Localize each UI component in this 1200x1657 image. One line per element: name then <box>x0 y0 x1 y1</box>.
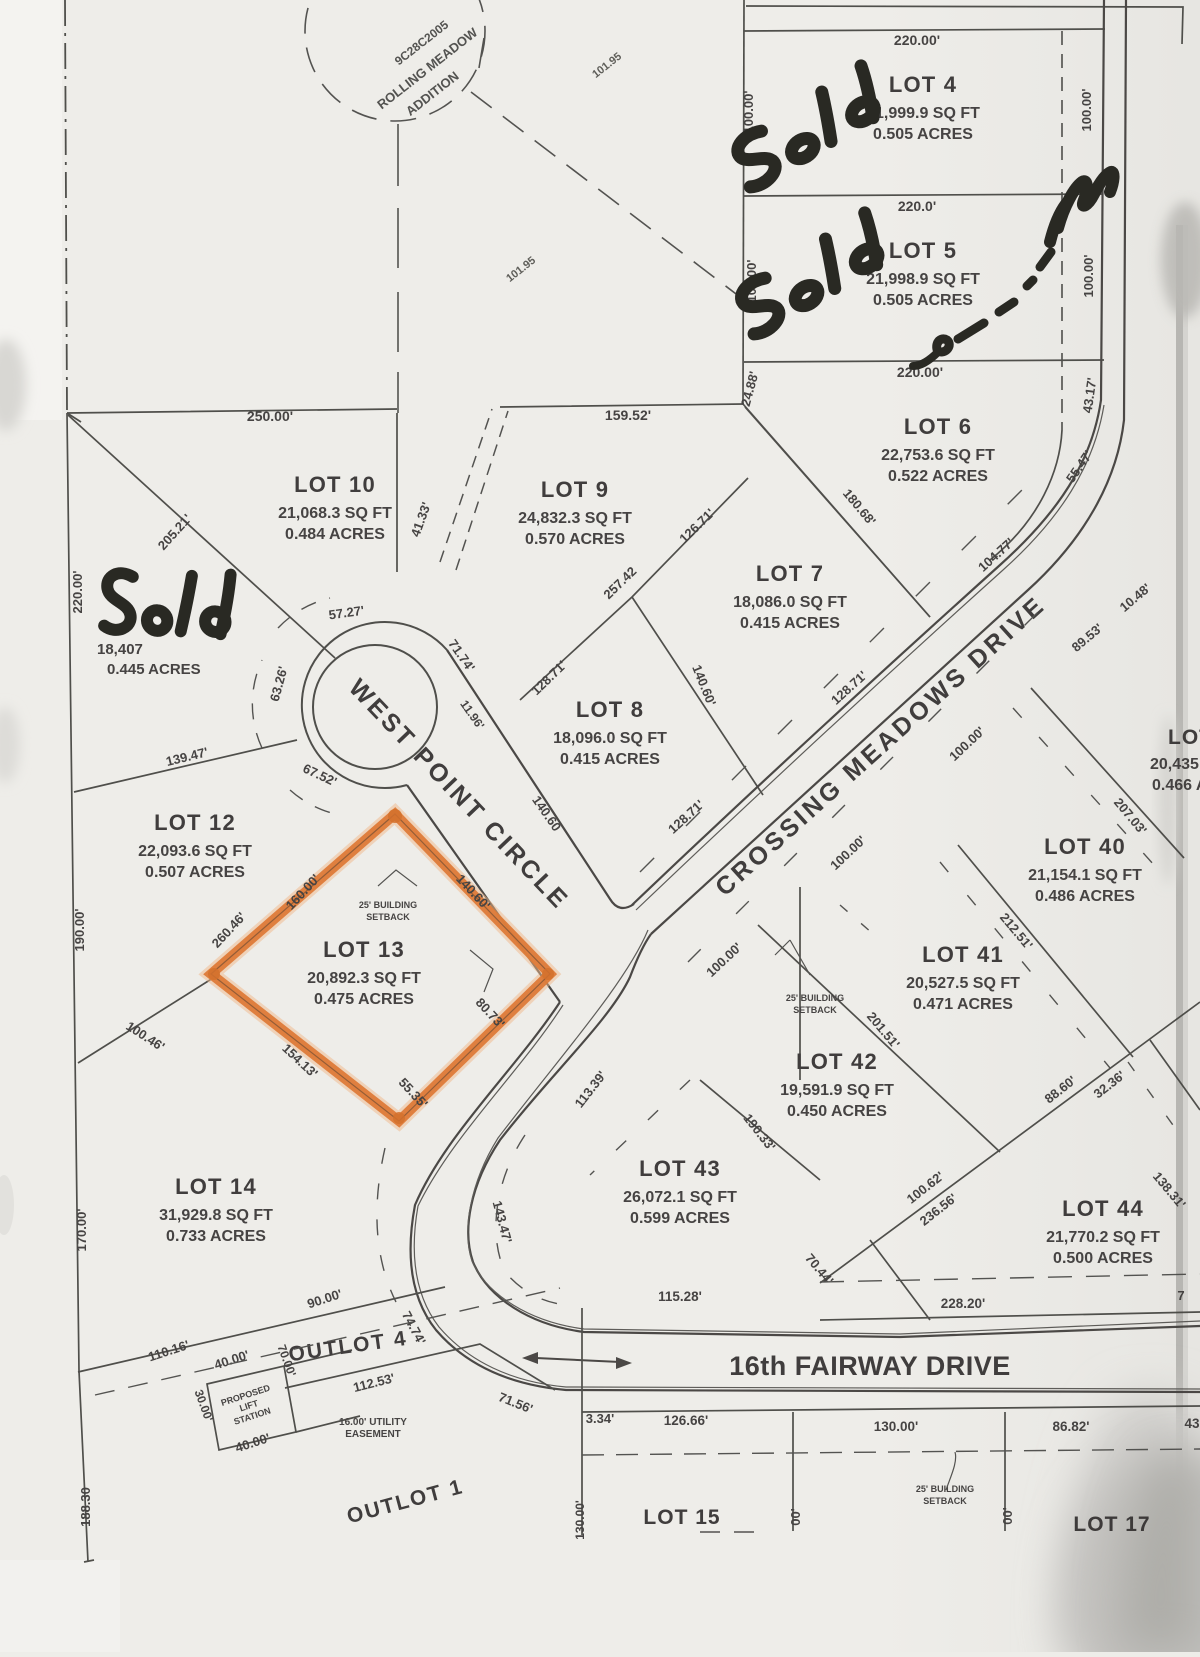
svg-text:126.66': 126.66' <box>664 1413 709 1428</box>
svg-text:LOT 8: LOT 8 <box>576 697 644 722</box>
svg-text:LOT 13: LOT 13 <box>323 937 405 962</box>
svg-text:16.00' UTILITY: 16.00' UTILITY <box>339 1417 407 1428</box>
svg-text:LOT 43: LOT 43 <box>639 1156 721 1181</box>
svg-text:0.500 ACRES: 0.500 ACRES <box>1053 1250 1153 1267</box>
svg-text:3.34': 3.34' <box>586 1411 614 1426</box>
svg-text:SETBACK: SETBACK <box>793 1005 837 1015</box>
svg-text:228.20': 228.20' <box>941 1296 986 1311</box>
svg-text:LOT 10: LOT 10 <box>294 472 376 497</box>
svg-text:LOT 41: LOT 41 <box>922 942 1004 967</box>
svg-text:LOT 4: LOT 4 <box>889 72 957 97</box>
svg-text:LOT 17: LOT 17 <box>1073 1513 1150 1536</box>
svg-text:0.445 ACRES: 0.445 ACRES <box>107 661 201 678</box>
svg-text:21,154.1 SQ FT: 21,154.1 SQ FT <box>1028 867 1142 884</box>
svg-text:LOT 39: LOT 39 <box>1168 726 1200 749</box>
svg-text:16th FAIRWAY DRIVE: 16th FAIRWAY DRIVE <box>729 1351 1011 1381</box>
svg-text:0.599 ACRES: 0.599 ACRES <box>630 1210 730 1227</box>
svg-text:188.30: 188.30 <box>78 1487 93 1527</box>
svg-text:18,086.0 SQ FT: 18,086.0 SQ FT <box>733 594 847 611</box>
svg-text:0.466 AC: 0.466 AC <box>1152 777 1200 794</box>
svg-text:0.415 ACRES: 0.415 ACRES <box>560 751 660 768</box>
svg-text:00': 00' <box>1000 1507 1015 1525</box>
svg-text:25' BUILDING: 25' BUILDING <box>359 900 417 910</box>
svg-text:18,096.0 SQ FT: 18,096.0 SQ FT <box>553 730 667 747</box>
svg-text:0.475 ACRES: 0.475 ACRES <box>314 991 414 1008</box>
svg-text:18,407: 18,407 <box>97 641 143 658</box>
svg-text:SETBACK: SETBACK <box>923 1496 967 1506</box>
svg-text:0.505 ACRES: 0.505 ACRES <box>873 292 973 309</box>
svg-text:LOT 5: LOT 5 <box>889 238 957 263</box>
svg-text:LOT 9: LOT 9 <box>541 477 609 502</box>
svg-text:170.00': 170.00' <box>74 1209 89 1252</box>
svg-text:0.507 ACRES: 0.507 ACRES <box>145 864 245 881</box>
svg-text:220.00': 220.00' <box>894 32 940 48</box>
svg-text:0.415 ACRES: 0.415 ACRES <box>740 615 840 632</box>
svg-text:LOT 7: LOT 7 <box>756 561 824 586</box>
svg-text:130.00': 130.00' <box>874 1419 919 1434</box>
svg-text:190.00': 190.00' <box>72 909 87 952</box>
svg-text:220.00': 220.00' <box>70 571 85 614</box>
svg-text:115.28': 115.28' <box>658 1289 702 1304</box>
svg-text:24,832.3 SQ FT: 24,832.3 SQ FT <box>518 510 632 527</box>
svg-text:100.00': 100.00' <box>1081 255 1096 298</box>
svg-text:0.471 ACRES: 0.471 ACRES <box>913 996 1013 1013</box>
svg-text:EASEMENT: EASEMENT <box>345 1429 401 1440</box>
svg-text:0.505 ACRES: 0.505 ACRES <box>873 126 973 143</box>
svg-text:22,093.6 SQ FT: 22,093.6 SQ FT <box>138 843 252 860</box>
svg-text:SETBACK: SETBACK <box>366 912 410 922</box>
svg-text:31,929.8 SQ FT: 31,929.8 SQ FT <box>159 1207 273 1224</box>
svg-text:20,892.3 SQ FT: 20,892.3 SQ FT <box>307 970 421 987</box>
svg-text:26,072.1 SQ FT: 26,072.1 SQ FT <box>623 1189 737 1206</box>
svg-text:0.450 ACRES: 0.450 ACRES <box>787 1103 887 1120</box>
svg-text:00': 00' <box>788 1508 803 1526</box>
svg-text:20,435.6: 20,435.6 <box>1150 756 1200 773</box>
svg-text:21,998.9 SQ FT: 21,998.9 SQ FT <box>866 271 980 288</box>
svg-text:22,753.6 SQ FT: 22,753.6 SQ FT <box>881 447 995 464</box>
svg-text:19,591.9 SQ FT: 19,591.9 SQ FT <box>780 1082 894 1099</box>
svg-text:7: 7 <box>1177 1288 1184 1303</box>
svg-text:0.733 ACRES: 0.733 ACRES <box>166 1228 266 1245</box>
svg-text:0.486 ACRES: 0.486 ACRES <box>1035 888 1135 905</box>
svg-text:21,999.9 SQ FT: 21,999.9 SQ FT <box>866 105 980 122</box>
svg-text:220.0': 220.0' <box>898 198 936 214</box>
svg-text:43: 43 <box>1184 1416 1200 1431</box>
svg-text:LOT 42: LOT 42 <box>796 1049 878 1074</box>
svg-text:21,068.3 SQ FT: 21,068.3 SQ FT <box>278 505 392 522</box>
svg-text:159.52': 159.52' <box>605 407 651 423</box>
svg-text:LOT 14: LOT 14 <box>175 1174 257 1199</box>
svg-text:21,770.2 SQ FT: 21,770.2 SQ FT <box>1046 1229 1160 1246</box>
svg-text:130.00': 130.00' <box>573 1500 587 1540</box>
svg-text:0.522 ACRES: 0.522 ACRES <box>888 468 988 485</box>
svg-text:LOT 12: LOT 12 <box>154 810 236 835</box>
svg-text:100.00': 100.00' <box>1079 89 1094 132</box>
svg-text:LOT 15: LOT 15 <box>643 1506 720 1529</box>
svg-text:86.82': 86.82' <box>1053 1419 1090 1434</box>
svg-text:0.570 ACRES: 0.570 ACRES <box>525 531 625 548</box>
svg-text:LOT 44: LOT 44 <box>1062 1196 1144 1221</box>
svg-text:25' BUILDING: 25' BUILDING <box>916 1484 974 1494</box>
svg-text:250.00': 250.00' <box>247 408 293 424</box>
svg-text:25' BUILDING: 25' BUILDING <box>786 993 844 1003</box>
svg-text:20,527.5 SQ FT: 20,527.5 SQ FT <box>906 975 1020 992</box>
svg-text:LOT 6: LOT 6 <box>904 414 972 439</box>
svg-text:0.484 ACRES: 0.484 ACRES <box>285 526 385 543</box>
svg-text:LOT 40: LOT 40 <box>1044 834 1126 859</box>
